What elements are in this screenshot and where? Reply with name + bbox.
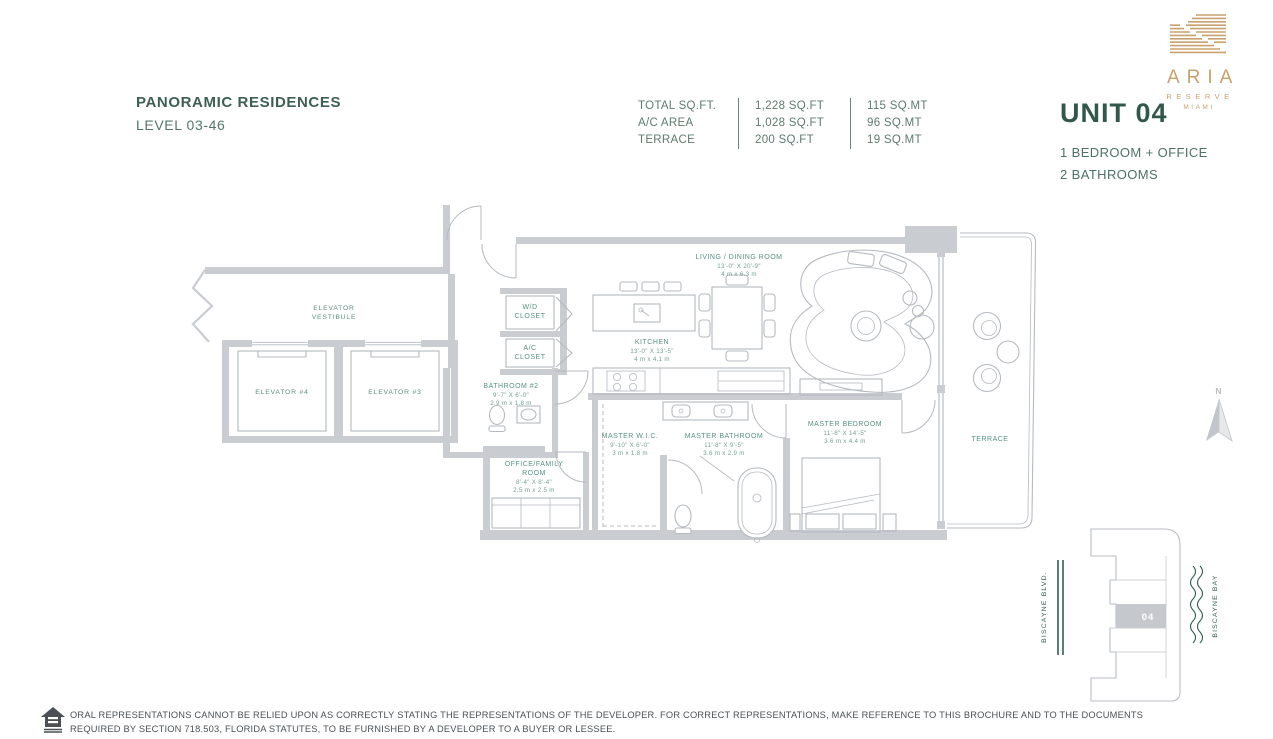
toilet-icon — [490, 406, 505, 425]
brochure-page: PANORAMIC RESIDENCES LEVEL 03-46 TOTAL S… — [0, 0, 1273, 739]
room-dims-ft: 13'-0" X 13'-5" — [630, 348, 674, 355]
unit-bedrooms: 1 BEDROOM + OFFICE — [1060, 145, 1208, 160]
room-label: MASTER W.I.C. — [602, 433, 659, 440]
room-dims-m: 3.6 m x 2.9 m — [703, 450, 744, 457]
compass-icon — [1206, 399, 1219, 441]
room-label: ROOM — [522, 470, 546, 477]
chair-icon — [764, 294, 775, 311]
room-label: OFFICE/FAMILY — [505, 461, 564, 468]
dining-set — [699, 275, 775, 361]
unit-summary: UNIT 04 1 BEDROOM + OFFICE 2 BATHROOMS — [1060, 98, 1208, 182]
kitchen-island — [593, 295, 695, 331]
room-dims-ft: 9'-7" X 6'-0" — [493, 392, 529, 399]
water-wave-icon — [1191, 566, 1196, 643]
stat-sqmt: 96 SQ.MT — [850, 115, 942, 132]
stat-sqft: 200 SQ.FT — [738, 132, 850, 149]
bath2-door-arc — [555, 371, 588, 404]
room-dims-ft: 11'-8" X 14'-5" — [823, 430, 866, 437]
disclaimer-text: ORAL REPRESENTATIONS CANNOT BE RELIED UP… — [70, 706, 1143, 739]
mbath-fixtures — [663, 402, 776, 543]
room-label: MASTER BATHROOM — [685, 433, 764, 440]
room-dims-m: 4 m x 6.3 m — [721, 271, 757, 278]
patio-table-icon — [997, 341, 1019, 363]
floor-plan: ELEVATOR VESTIBULE ELEVATOR #4 ELEVATOR … — [140, 195, 1260, 720]
wic-fixtures — [603, 404, 658, 528]
keyplan-unit-number: 04 — [1142, 612, 1155, 623]
room-label: CLOSET — [514, 354, 545, 361]
room-label: VESTIBULE — [312, 314, 357, 321]
burner-icon — [613, 383, 620, 390]
street-label: BISCAYNE BLVD. — [1041, 571, 1048, 643]
floor-plan-svg: ELEVATOR VESTIBULE ELEVATOR #4 ELEVATOR … — [140, 195, 1260, 715]
keyplan: 04 BISCAYNE BLVD. BISCAYNE BAY — [1041, 529, 1219, 701]
kitchen-fixtures — [593, 282, 790, 394]
stat-label: TERRACE — [638, 132, 738, 149]
stat-label: A/C AREA — [638, 115, 738, 132]
bath2-fixtures — [489, 406, 540, 432]
room-dims-m: 2.9 m x 1.8 m — [490, 400, 531, 407]
room-label: ELEVATOR #4 — [255, 389, 308, 396]
mbed-fixtures — [790, 379, 896, 532]
nightstand — [883, 514, 896, 531]
room-label: BATHROOM #2 — [483, 383, 538, 390]
room-label: TERRACE — [972, 436, 1009, 443]
room-label: ELEVATOR — [313, 305, 355, 312]
room-labels: ELEVATOR VESTIBULE ELEVATOR #4 ELEVATOR … — [255, 254, 1008, 494]
room-dims-m: 3.6 m x 4.4 m — [824, 438, 865, 445]
bay-label: BISCAYNE BAY — [1212, 574, 1219, 637]
disclaimer: ORAL REPRESENTATIONS CANNOT BE RELIED UP… — [40, 706, 1225, 739]
walls — [193, 205, 957, 540]
side-table-icon — [903, 291, 917, 305]
water-wave-icon — [1198, 566, 1203, 643]
stool-icon — [664, 282, 681, 291]
stat-sqft: 1,228 SQ.FT — [738, 98, 850, 115]
level-range: LEVEL 03-46 — [136, 117, 341, 133]
shower-glass — [700, 456, 734, 481]
office-sofa — [492, 498, 580, 528]
toilet-icon — [675, 505, 691, 527]
room-label: MASTER BEDROOM — [808, 421, 882, 428]
terrace-structure — [937, 233, 1036, 529]
bed-icon — [802, 458, 880, 532]
chair-icon — [726, 351, 748, 361]
armchair-icon — [910, 315, 934, 339]
room-label: LIVING / DINING ROOM — [695, 254, 782, 261]
collection-header: PANORAMIC RESIDENCES LEVEL 03-46 — [136, 94, 341, 133]
stool-icon — [642, 282, 659, 291]
chair-icon — [699, 294, 710, 311]
room-dims-ft: 9'-10" X 6'-0" — [610, 442, 650, 449]
room-label: W/D — [522, 304, 537, 311]
area-stats-table: TOTAL SQ.FT. 1,228 SQ.FT 115 SQ.MT A/C A… — [638, 98, 942, 149]
unit-number: UNIT 04 — [1060, 98, 1208, 129]
mbed-door-arc — [902, 400, 935, 433]
chair-icon — [764, 320, 775, 337]
room-dims-m: 4 m x 4.1 m — [634, 356, 670, 363]
aria-reserve-logo: ARIA RESERVE MIAMI — [1160, 13, 1236, 111]
island-sink-icon — [634, 304, 660, 322]
unit-bathrooms: 2 BATHROOMS — [1060, 167, 1208, 182]
room-label: KITCHEN — [635, 339, 669, 346]
room-dims-ft: 13'-0" X 20'-9" — [717, 263, 761, 270]
coffee-table-icon — [851, 311, 881, 341]
cushion — [847, 251, 874, 267]
terrace-furniture — [974, 313, 1020, 392]
stat-sqmt: 115 SQ.MT — [850, 98, 942, 115]
dining-table — [712, 287, 762, 349]
equal-housing-icon — [40, 706, 70, 739]
brand-name: ARIA — [1160, 67, 1236, 89]
sink-icon — [714, 405, 732, 417]
collection-title: PANORAMIC RESIDENCES — [136, 94, 341, 111]
pillow — [806, 514, 839, 529]
chair-icon — [699, 320, 710, 337]
sink-icon — [672, 405, 690, 417]
room-dims-ft: 11'-8" X 9'-5" — [704, 442, 743, 449]
disclaimer-line1: ORAL REPRESENTATIONS CANNOT BE RELIED UP… — [70, 709, 1143, 723]
room-label: CLOSET — [514, 313, 545, 320]
terrace-railing — [947, 233, 1036, 528]
disclaimer-line2: REQUIRED BY SECTION 718.503, FLORIDA STA… — [70, 723, 1143, 737]
pillow — [843, 514, 876, 529]
north-arrow: N — [1206, 386, 1232, 441]
north-label: N — [1215, 386, 1222, 396]
living-sofa — [790, 250, 934, 392]
aria-logo-lines-icon — [1166, 13, 1230, 59]
stool-icon — [620, 282, 637, 291]
burner-icon — [613, 373, 620, 380]
burner-icon — [629, 383, 636, 390]
room-dims-ft: 8'-4" X 8'-4" — [516, 479, 552, 486]
room-label: A/C — [523, 345, 536, 352]
stat-sqmt: 19 SQ.MT — [850, 132, 942, 149]
room-dims-m: 3 m x 1.8 m — [612, 450, 648, 457]
wic-door-arc — [668, 460, 702, 494]
entry-door-arc — [447, 206, 481, 240]
stat-label: TOTAL SQ.FT. — [638, 98, 738, 115]
nightstand — [790, 514, 800, 531]
stat-sqft: 1,028 SQ.FT — [738, 115, 850, 132]
burner-icon — [629, 373, 636, 380]
room-dims-m: 2.5 m x 2.5 m — [513, 487, 554, 494]
room-label: ELEVATOR #3 — [368, 389, 421, 396]
